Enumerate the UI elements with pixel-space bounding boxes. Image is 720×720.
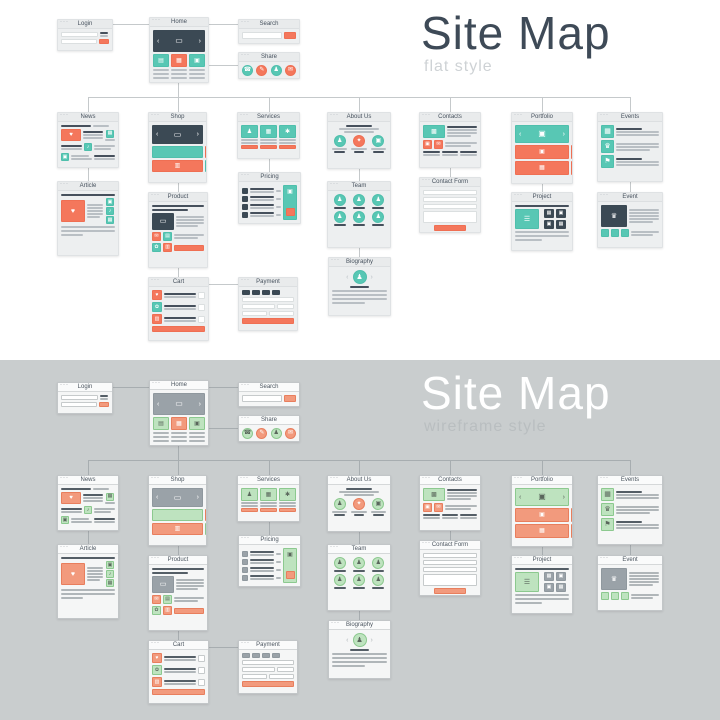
content-col: ▦ xyxy=(171,417,187,442)
node-card-services: ···Services♟▦✱ xyxy=(237,112,300,159)
card-body: ♟▦✱ xyxy=(238,122,299,158)
text-line xyxy=(372,570,384,572)
text-line xyxy=(279,139,296,141)
phone-icon: ☎ xyxy=(244,430,251,436)
connector-line xyxy=(88,531,89,544)
content-col: ♟ xyxy=(370,194,387,209)
text-line xyxy=(353,587,365,589)
music-icon: ♪ xyxy=(87,145,90,150)
text-line xyxy=(87,567,103,569)
connector-line xyxy=(359,169,360,181)
text-line xyxy=(71,158,92,160)
text-line xyxy=(373,151,383,153)
node-card-project: ···Project☰▦▣▣▦ xyxy=(511,192,573,251)
text-line xyxy=(164,656,196,658)
chevron-left-icon: ‹ xyxy=(346,274,348,281)
input-field xyxy=(277,667,294,672)
card-body: ‹▣›▣▦▣▦▣▦ xyxy=(512,122,572,183)
text-line xyxy=(94,511,111,513)
cart-tile: ▥ xyxy=(152,314,162,324)
text-line xyxy=(350,286,369,288)
text-line xyxy=(153,77,169,79)
button xyxy=(284,395,296,402)
input-field xyxy=(242,311,267,316)
text-line xyxy=(171,77,187,79)
content-row: ☎✎♟✉ xyxy=(242,428,296,438)
text-line xyxy=(616,506,659,508)
building-icon: ▩ xyxy=(431,492,437,498)
text-line xyxy=(346,125,371,127)
text-line xyxy=(94,145,115,147)
text-line xyxy=(61,145,82,147)
list-block: ☰ xyxy=(515,572,539,592)
card-body: ♥▦♪▣ xyxy=(58,122,118,167)
user-block: ♟ xyxy=(241,488,258,501)
text-line xyxy=(629,218,659,220)
connector-line xyxy=(450,98,451,112)
folder-tile: ▣ xyxy=(106,198,114,206)
user-tile: ♟ xyxy=(334,135,346,147)
connector-line xyxy=(178,631,179,640)
card-body: ♛ xyxy=(598,202,662,247)
card-body xyxy=(420,550,480,595)
text-line xyxy=(351,148,367,150)
input-field xyxy=(242,667,275,672)
button xyxy=(241,145,258,149)
card-body xyxy=(58,29,112,50)
window-dots-icon: ··· xyxy=(60,111,69,119)
card-body: ‹♟› xyxy=(329,267,390,315)
image-icon: ▣ xyxy=(538,130,546,138)
input-field xyxy=(198,304,205,311)
heart-block: ♥ xyxy=(61,492,81,504)
content-row xyxy=(242,304,294,309)
text-line xyxy=(629,584,653,586)
card-header: ···About Us xyxy=(328,476,390,485)
star-icon: ✦ xyxy=(356,138,361,144)
tile xyxy=(621,229,629,237)
content-col xyxy=(164,317,196,322)
connector-line xyxy=(113,387,149,388)
window-dots-icon: ··· xyxy=(241,18,250,26)
content-row: ▦▣ xyxy=(544,572,566,581)
window-dots-icon: ··· xyxy=(240,111,249,119)
card-title: Contacts xyxy=(438,113,462,121)
content-row: ▭☎ xyxy=(152,509,203,521)
content-row: ▣▦ xyxy=(544,583,566,592)
text-line xyxy=(61,511,82,513)
button xyxy=(174,608,204,614)
window-dots-icon: ··· xyxy=(241,276,250,284)
input-field xyxy=(423,204,477,209)
card-header: ···Share xyxy=(239,416,299,425)
connector-line xyxy=(450,168,451,177)
user-icon: ♟ xyxy=(273,67,278,73)
gift-icon: ✿ xyxy=(154,245,158,250)
text-line xyxy=(250,212,274,214)
user-tile: ♟ xyxy=(372,574,384,586)
gift-icon: ✿ xyxy=(154,608,158,613)
content-col xyxy=(83,131,103,139)
connector-line xyxy=(450,531,451,540)
content-row xyxy=(242,667,294,672)
text-line xyxy=(250,551,274,553)
mail-tile: ✉ xyxy=(434,503,443,512)
button xyxy=(174,245,204,251)
content-col: ▤ xyxy=(153,54,169,79)
mail-icon: ✉ xyxy=(154,234,158,239)
window-dots-icon: ··· xyxy=(152,379,161,387)
content-row: ▣✉ xyxy=(423,140,477,149)
text-line xyxy=(87,204,103,206)
text-line xyxy=(260,505,277,507)
text-line xyxy=(61,488,91,490)
button xyxy=(279,145,296,149)
content-row: ♟✦▣ xyxy=(331,498,387,516)
folder-tile: ▣ xyxy=(106,561,114,569)
input-field xyxy=(242,674,267,679)
user-tile: ♟ xyxy=(334,498,346,510)
content-row xyxy=(242,212,281,218)
text-line xyxy=(164,293,196,295)
trophy-icon: ♛ xyxy=(604,506,610,513)
node-card-contactform: ···Contact Form xyxy=(419,177,481,233)
content-row: ♛ xyxy=(601,140,659,153)
content-row: ♛ xyxy=(601,568,659,590)
connector-line xyxy=(630,182,631,192)
folder-tile: ▣ xyxy=(61,516,69,524)
gift-icon: ✿ xyxy=(155,305,159,310)
block xyxy=(242,559,248,565)
text-line xyxy=(631,597,653,599)
content-col xyxy=(250,575,274,580)
flag-icon: ⚑ xyxy=(604,521,610,528)
connector-line xyxy=(630,461,631,475)
chevron-right-icon: › xyxy=(371,274,373,281)
content-col xyxy=(94,518,115,523)
content-row: ▩ xyxy=(423,488,477,501)
content-row xyxy=(242,32,296,39)
text-line xyxy=(61,508,82,510)
card-title: Event xyxy=(622,193,637,201)
card-body: ♥▦♪▣ xyxy=(58,485,118,530)
content-row: ✿ xyxy=(152,302,205,312)
text-line xyxy=(61,589,115,591)
monitor-block: ▭ xyxy=(205,146,206,158)
mail-icon: ✉ xyxy=(154,597,158,602)
node-card-payment: ···Payment xyxy=(238,277,298,331)
node-card-login: ···Login xyxy=(57,382,113,414)
text-line xyxy=(279,142,296,144)
card-header: ···Event xyxy=(598,556,662,565)
text-line xyxy=(616,134,659,136)
window-dots-icon: ··· xyxy=(600,191,609,199)
content-col xyxy=(250,551,274,556)
content-col xyxy=(164,293,196,298)
text-line xyxy=(171,440,187,442)
star-tile: ✦ xyxy=(353,135,365,147)
content-col: ▣ xyxy=(189,54,205,79)
connector-line xyxy=(630,545,631,555)
button xyxy=(284,32,296,39)
card-body xyxy=(239,287,297,330)
text-line xyxy=(515,239,542,241)
text-line xyxy=(61,593,115,595)
button xyxy=(152,326,205,332)
chevron-left-icon: ‹ xyxy=(346,637,348,644)
music-tile: ♪ xyxy=(106,570,114,578)
text-line xyxy=(447,135,471,137)
text-line xyxy=(152,205,204,207)
text-line xyxy=(250,191,274,193)
card-body: ▩▣✉ xyxy=(420,485,480,530)
content-row: ♪ xyxy=(61,506,115,514)
card-title: About Us xyxy=(347,476,372,484)
input-field xyxy=(423,190,477,195)
chevron-right-icon: › xyxy=(371,637,373,644)
user-icon: ♟ xyxy=(376,560,381,566)
node-card-share: ···Share☎✎♟✉ xyxy=(238,52,300,79)
node-card-product: ···Product▭✉▤✿▥ xyxy=(148,192,208,268)
card-header: ···Contacts xyxy=(420,476,480,485)
user-icon: ♟ xyxy=(337,501,342,507)
card-header: ···Pricing xyxy=(239,536,300,545)
text-line xyxy=(616,158,642,160)
input-field xyxy=(423,553,477,558)
content-col: ▣ xyxy=(370,135,387,153)
card-title: Shop xyxy=(170,113,184,121)
text-line xyxy=(164,305,196,307)
card-title: Article xyxy=(80,545,97,553)
text-line xyxy=(87,570,103,572)
block xyxy=(242,196,248,202)
grid-icon: ▤ xyxy=(165,597,170,602)
content-col xyxy=(250,559,274,564)
text-line xyxy=(260,142,277,144)
text-line xyxy=(152,209,188,211)
card-header: ···Project xyxy=(512,556,572,565)
card-title: Biography xyxy=(346,621,373,629)
gear-block: ✱ xyxy=(279,125,296,138)
text-line xyxy=(339,128,378,130)
user-icon: ♟ xyxy=(356,214,361,220)
text-line xyxy=(174,597,204,599)
text-line xyxy=(250,562,274,564)
content-col xyxy=(460,151,477,156)
gear-icon: ✱ xyxy=(285,129,290,135)
text-line xyxy=(515,598,569,600)
cart-icon: ▥ xyxy=(165,608,170,613)
card-title: Search xyxy=(259,20,278,28)
user-icon: ♟ xyxy=(356,637,362,644)
content-col: ▦ xyxy=(260,488,277,512)
text-line xyxy=(372,587,384,589)
cart-block: ▥ xyxy=(152,160,203,172)
text-line xyxy=(260,502,277,504)
content-col xyxy=(176,579,204,590)
text-line xyxy=(250,567,274,569)
text-line xyxy=(94,155,115,157)
mail-tile: ✉ xyxy=(152,595,161,604)
trophy-icon: ♛ xyxy=(604,143,610,150)
text-line xyxy=(515,235,569,237)
input-field xyxy=(198,667,205,674)
content-row: ▩ xyxy=(423,125,477,138)
building-icon: ▩ xyxy=(431,129,437,135)
button xyxy=(99,39,109,44)
input-field xyxy=(423,567,477,572)
folder-block: ▣ xyxy=(544,583,554,592)
chevron-left-icon: ‹ xyxy=(519,494,521,501)
window-dots-icon: ··· xyxy=(241,171,250,179)
text-line xyxy=(171,432,187,434)
text-line xyxy=(250,196,274,198)
node-card-cart: ···Cart♥✿▥ xyxy=(148,277,209,341)
chart-icon: ▦ xyxy=(539,165,545,171)
window-dots-icon: ··· xyxy=(241,414,250,422)
user-block: ♟ xyxy=(241,125,258,138)
button xyxy=(434,588,466,594)
user-tile: ♟ xyxy=(353,633,367,647)
content-row: ⚑ xyxy=(601,155,659,168)
text-line xyxy=(616,161,659,163)
node-card-aboutus: ···About Us♟✦▣ xyxy=(327,475,391,532)
connector-line xyxy=(209,284,238,285)
content-row: ▣ xyxy=(61,153,115,161)
text-line xyxy=(515,594,569,596)
card-title: Shop xyxy=(170,476,184,484)
user-icon: ♟ xyxy=(337,197,342,203)
connector-line xyxy=(209,428,238,429)
block xyxy=(252,290,260,295)
connector-line xyxy=(209,65,238,66)
calendar-tile: ▦ xyxy=(601,125,614,138)
monitor-block: ▭ xyxy=(152,576,174,593)
text-line xyxy=(616,512,650,514)
gear-block: ✱ xyxy=(279,488,296,501)
button xyxy=(241,508,258,512)
window-dots-icon: ··· xyxy=(60,18,69,26)
text-line xyxy=(616,497,659,499)
node-card-event: ···Event♛ xyxy=(597,192,663,248)
text-line xyxy=(616,164,659,166)
input-field xyxy=(423,197,477,202)
user-icon: ♟ xyxy=(247,129,252,135)
input-field xyxy=(269,311,294,316)
text-line xyxy=(61,226,115,228)
input-field xyxy=(242,395,282,402)
card-body: ♟▦✱ xyxy=(238,485,299,521)
cart-tile: ▥ xyxy=(152,677,162,687)
text-line xyxy=(616,524,659,526)
connector-line xyxy=(113,24,149,25)
text-line xyxy=(250,188,274,190)
image-icon: ▣ xyxy=(425,505,430,510)
text-line xyxy=(153,432,169,434)
content-col: ♟ xyxy=(331,135,348,153)
mail-tile: ✉ xyxy=(285,428,296,439)
window-dots-icon: ··· xyxy=(151,276,160,284)
card-header: ···Events xyxy=(598,113,662,122)
button xyxy=(260,145,277,149)
node-card-team: ···Team♟♟♟♟♟♟ xyxy=(327,181,391,248)
folder-tile: ▣ xyxy=(372,498,384,510)
text-line xyxy=(616,521,642,523)
card-body: ♟♟♟♟♟♟ xyxy=(328,191,390,247)
text-line xyxy=(445,145,471,147)
gift-tile: ✿ xyxy=(152,302,162,312)
flag-icon: ⚑ xyxy=(604,158,610,165)
window-dots-icon: ··· xyxy=(514,554,523,562)
block xyxy=(272,653,280,658)
text-line xyxy=(460,517,477,519)
text-line xyxy=(279,502,296,504)
mail-tile: ✉ xyxy=(434,140,443,149)
text-line xyxy=(334,587,346,589)
text-line xyxy=(176,216,204,218)
block xyxy=(286,571,295,579)
content-col: ✦ xyxy=(350,135,367,153)
connector-line xyxy=(359,532,360,544)
card-title: Project xyxy=(533,193,552,201)
connector-line xyxy=(88,168,89,181)
chevron-right-icon: › xyxy=(199,38,201,45)
text-line xyxy=(372,207,384,209)
input-field xyxy=(242,297,294,302)
content-row: ▦▣ xyxy=(544,209,566,218)
text-line xyxy=(189,432,205,434)
content-row: ▥✿♪ xyxy=(152,523,203,535)
text-line xyxy=(442,514,459,516)
heart-icon: ♥ xyxy=(156,656,159,661)
button xyxy=(242,681,294,687)
text-line xyxy=(447,489,477,491)
pencil-tile: ✎ xyxy=(256,428,267,439)
content-col: ♟ xyxy=(350,557,367,572)
text-line xyxy=(176,579,204,581)
mail-icon: ✉ xyxy=(436,505,440,510)
text-line xyxy=(276,198,281,200)
window-dots-icon: ··· xyxy=(514,191,523,199)
text-line xyxy=(61,125,91,127)
input-field xyxy=(423,560,477,565)
text-line xyxy=(629,212,659,214)
button xyxy=(242,318,294,324)
card-header: ···Pricing xyxy=(239,173,300,182)
text-line xyxy=(153,69,169,71)
text-line xyxy=(164,671,196,673)
content-col xyxy=(447,489,477,500)
node-card-contacts: ···Contacts▩▣✉ xyxy=(419,475,481,531)
calendar-icon: ▦ xyxy=(604,128,611,135)
connector-line xyxy=(178,83,179,98)
window-dots-icon: ··· xyxy=(151,639,160,647)
card-header: ···News xyxy=(58,476,118,485)
content-col: ✱ xyxy=(279,488,296,512)
grid-block: ▤ xyxy=(153,417,169,430)
content-row: ▣✉ xyxy=(423,503,477,512)
content-col: ▦ xyxy=(260,125,277,149)
chart-block: ▦ xyxy=(515,524,569,538)
window-dots-icon: ··· xyxy=(600,111,609,119)
text-line xyxy=(241,505,258,507)
content-col: ▦ xyxy=(105,130,115,141)
heart-block: ♥ xyxy=(61,563,85,585)
card-title: Cart xyxy=(173,278,184,286)
connector-line xyxy=(542,461,543,475)
content-row xyxy=(242,559,281,565)
text-line xyxy=(94,158,115,160)
